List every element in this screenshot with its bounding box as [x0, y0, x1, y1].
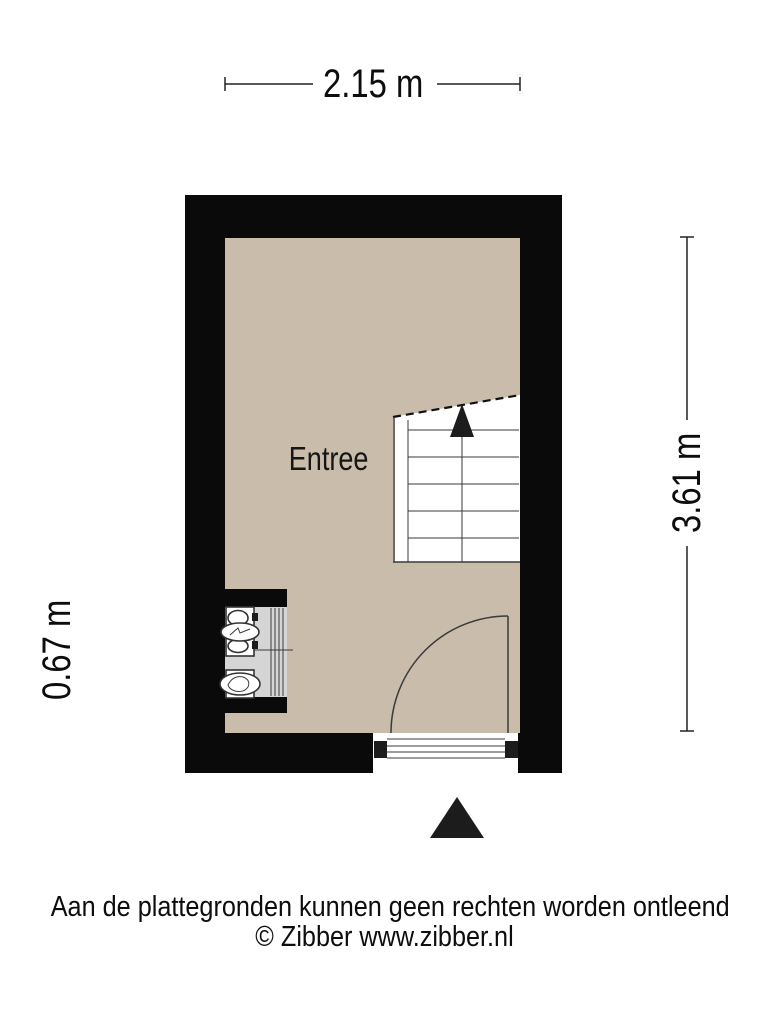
nook-wall-stub-top: [225, 589, 287, 607]
dimension-niche-label: 0.67 m: [42, 589, 72, 711]
staircase: [393, 395, 520, 562]
floorplan-page: 2.15 m 3.61 m 0.67 m Entree Aan de platt…: [0, 0, 768, 1024]
dimension-width-label: 2.15 m: [312, 66, 434, 102]
sink-icon: [221, 607, 259, 656]
footer-disclaimer: Aan de plattegronden kunnen geen rechten…: [0, 891, 768, 924]
toilet-nook: [220, 589, 293, 713]
toilet-icon: [220, 670, 260, 698]
dimension-height-label: 3.61 m: [672, 422, 702, 544]
footer-copyright: © Zibber www.zibber.nl: [0, 921, 768, 954]
room-label: Entree: [229, 440, 429, 478]
nook-wall-stub-bottom: [225, 697, 287, 713]
entrance-arrow-icon: [430, 797, 484, 838]
floorplan-drawing: [0, 0, 768, 1024]
